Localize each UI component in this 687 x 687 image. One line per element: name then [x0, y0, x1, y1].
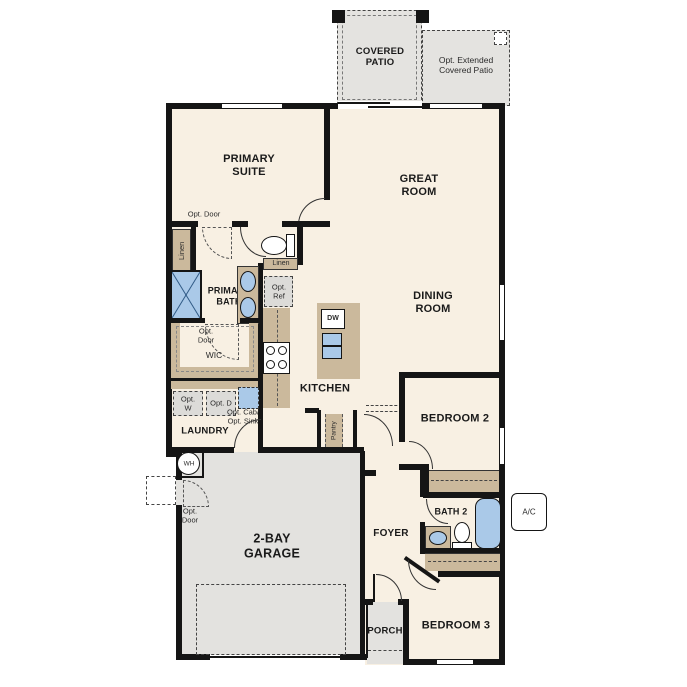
window: [499, 428, 505, 464]
window: [499, 285, 505, 340]
annotation-opt-washer: Opt. W: [177, 395, 199, 412]
room-label-foyer: FOYER: [361, 528, 421, 540]
room-label-great-room: GREAT ROOM: [386, 173, 452, 199]
wall: [166, 447, 234, 453]
opt-sink: [238, 387, 259, 409]
sliding-door-panel: [338, 102, 390, 104]
annotation-opt-ref: Opt. Ref: [267, 283, 291, 300]
annotation-linen-vertical: Linen: [174, 231, 189, 270]
room-label-primary-suite: PRIMARY SUITE: [206, 153, 292, 179]
wall: [363, 470, 376, 476]
front-door-leaf: [373, 574, 375, 602]
annotation-opt-door-primary: Opt. Door: [174, 211, 234, 220]
room-label-bedroom-2: BEDROOM 2: [400, 413, 510, 426]
wall: [191, 227, 196, 272]
wall: [420, 470, 425, 497]
annotation-opt-door-garage: Opt. Door: [177, 507, 203, 524]
room-label-opt-extended-patio: Opt. Extended Covered Patio: [428, 56, 504, 76]
wall: [317, 410, 321, 447]
room-label-laundry: LAUNDRY: [170, 425, 240, 436]
wall: [324, 103, 330, 200]
wall: [365, 599, 373, 605]
patio-post: [416, 10, 429, 23]
room-label-bath-2: BATH 2: [426, 507, 476, 518]
annotation-water-heater: WH: [178, 460, 200, 467]
room-label-covered-patio: COVERED PATIO: [348, 46, 412, 68]
wall: [306, 447, 364, 453]
window: [222, 103, 282, 109]
annotation-dishwasher: DW: [322, 315, 344, 323]
wh-nook-wall: [202, 452, 204, 478]
island-sink-divider: [323, 345, 341, 347]
wall: [499, 103, 505, 665]
toilet-bowl: [261, 236, 287, 255]
burner: [278, 346, 287, 355]
floor-plan: COVERED PATIO Opt. Extended Covered Pati…: [0, 0, 687, 687]
room-label-garage: 2-BAY GARAGE: [233, 531, 311, 561]
closet: [425, 553, 500, 571]
closet-rod-dash: [431, 480, 497, 481]
room-label-bedroom-3: BEDROOM 3: [401, 620, 511, 633]
wall-opening: [176, 480, 182, 505]
wall: [260, 447, 306, 453]
room-label-pantry: Pantry: [327, 415, 341, 446]
cased-opening: [366, 405, 402, 406]
shower: [170, 270, 202, 320]
annotation-opt-door-wic: Opt. Door: [193, 327, 219, 344]
sliding-door-panel: [368, 106, 422, 108]
toilet-bowl: [454, 522, 470, 543]
annotation-ac: A/C: [514, 507, 544, 516]
burner: [278, 360, 287, 369]
cased-opening: [366, 411, 402, 412]
wall: [399, 372, 405, 442]
bathtub: [475, 498, 501, 549]
sink: [240, 297, 256, 318]
wall: [353, 410, 357, 447]
closet: [429, 470, 499, 492]
wall: [399, 372, 505, 378]
room-label-wic: WIC: [194, 351, 234, 361]
window: [430, 103, 482, 109]
patio-post: [332, 10, 345, 23]
porch-step-dash: [368, 650, 402, 651]
sink: [429, 531, 447, 545]
annotation-linen-horizontal: Linen: [264, 260, 298, 268]
wh-nook-wall: [182, 476, 204, 478]
room-label-kitchen: KITCHEN: [285, 383, 365, 396]
burner: [266, 346, 275, 355]
burner: [266, 360, 275, 369]
toilet: [286, 234, 295, 257]
sink: [240, 271, 256, 292]
room-label-dining-room: DINING ROOM: [400, 290, 466, 316]
closet-rod-dash: [428, 561, 497, 562]
garage-door-threshold: [210, 656, 340, 658]
wall: [438, 571, 505, 577]
opt-patio-corner-marker: [494, 32, 507, 45]
garage-door: [196, 584, 346, 655]
opt-door-landing: [146, 476, 176, 505]
window: [437, 659, 473, 665]
